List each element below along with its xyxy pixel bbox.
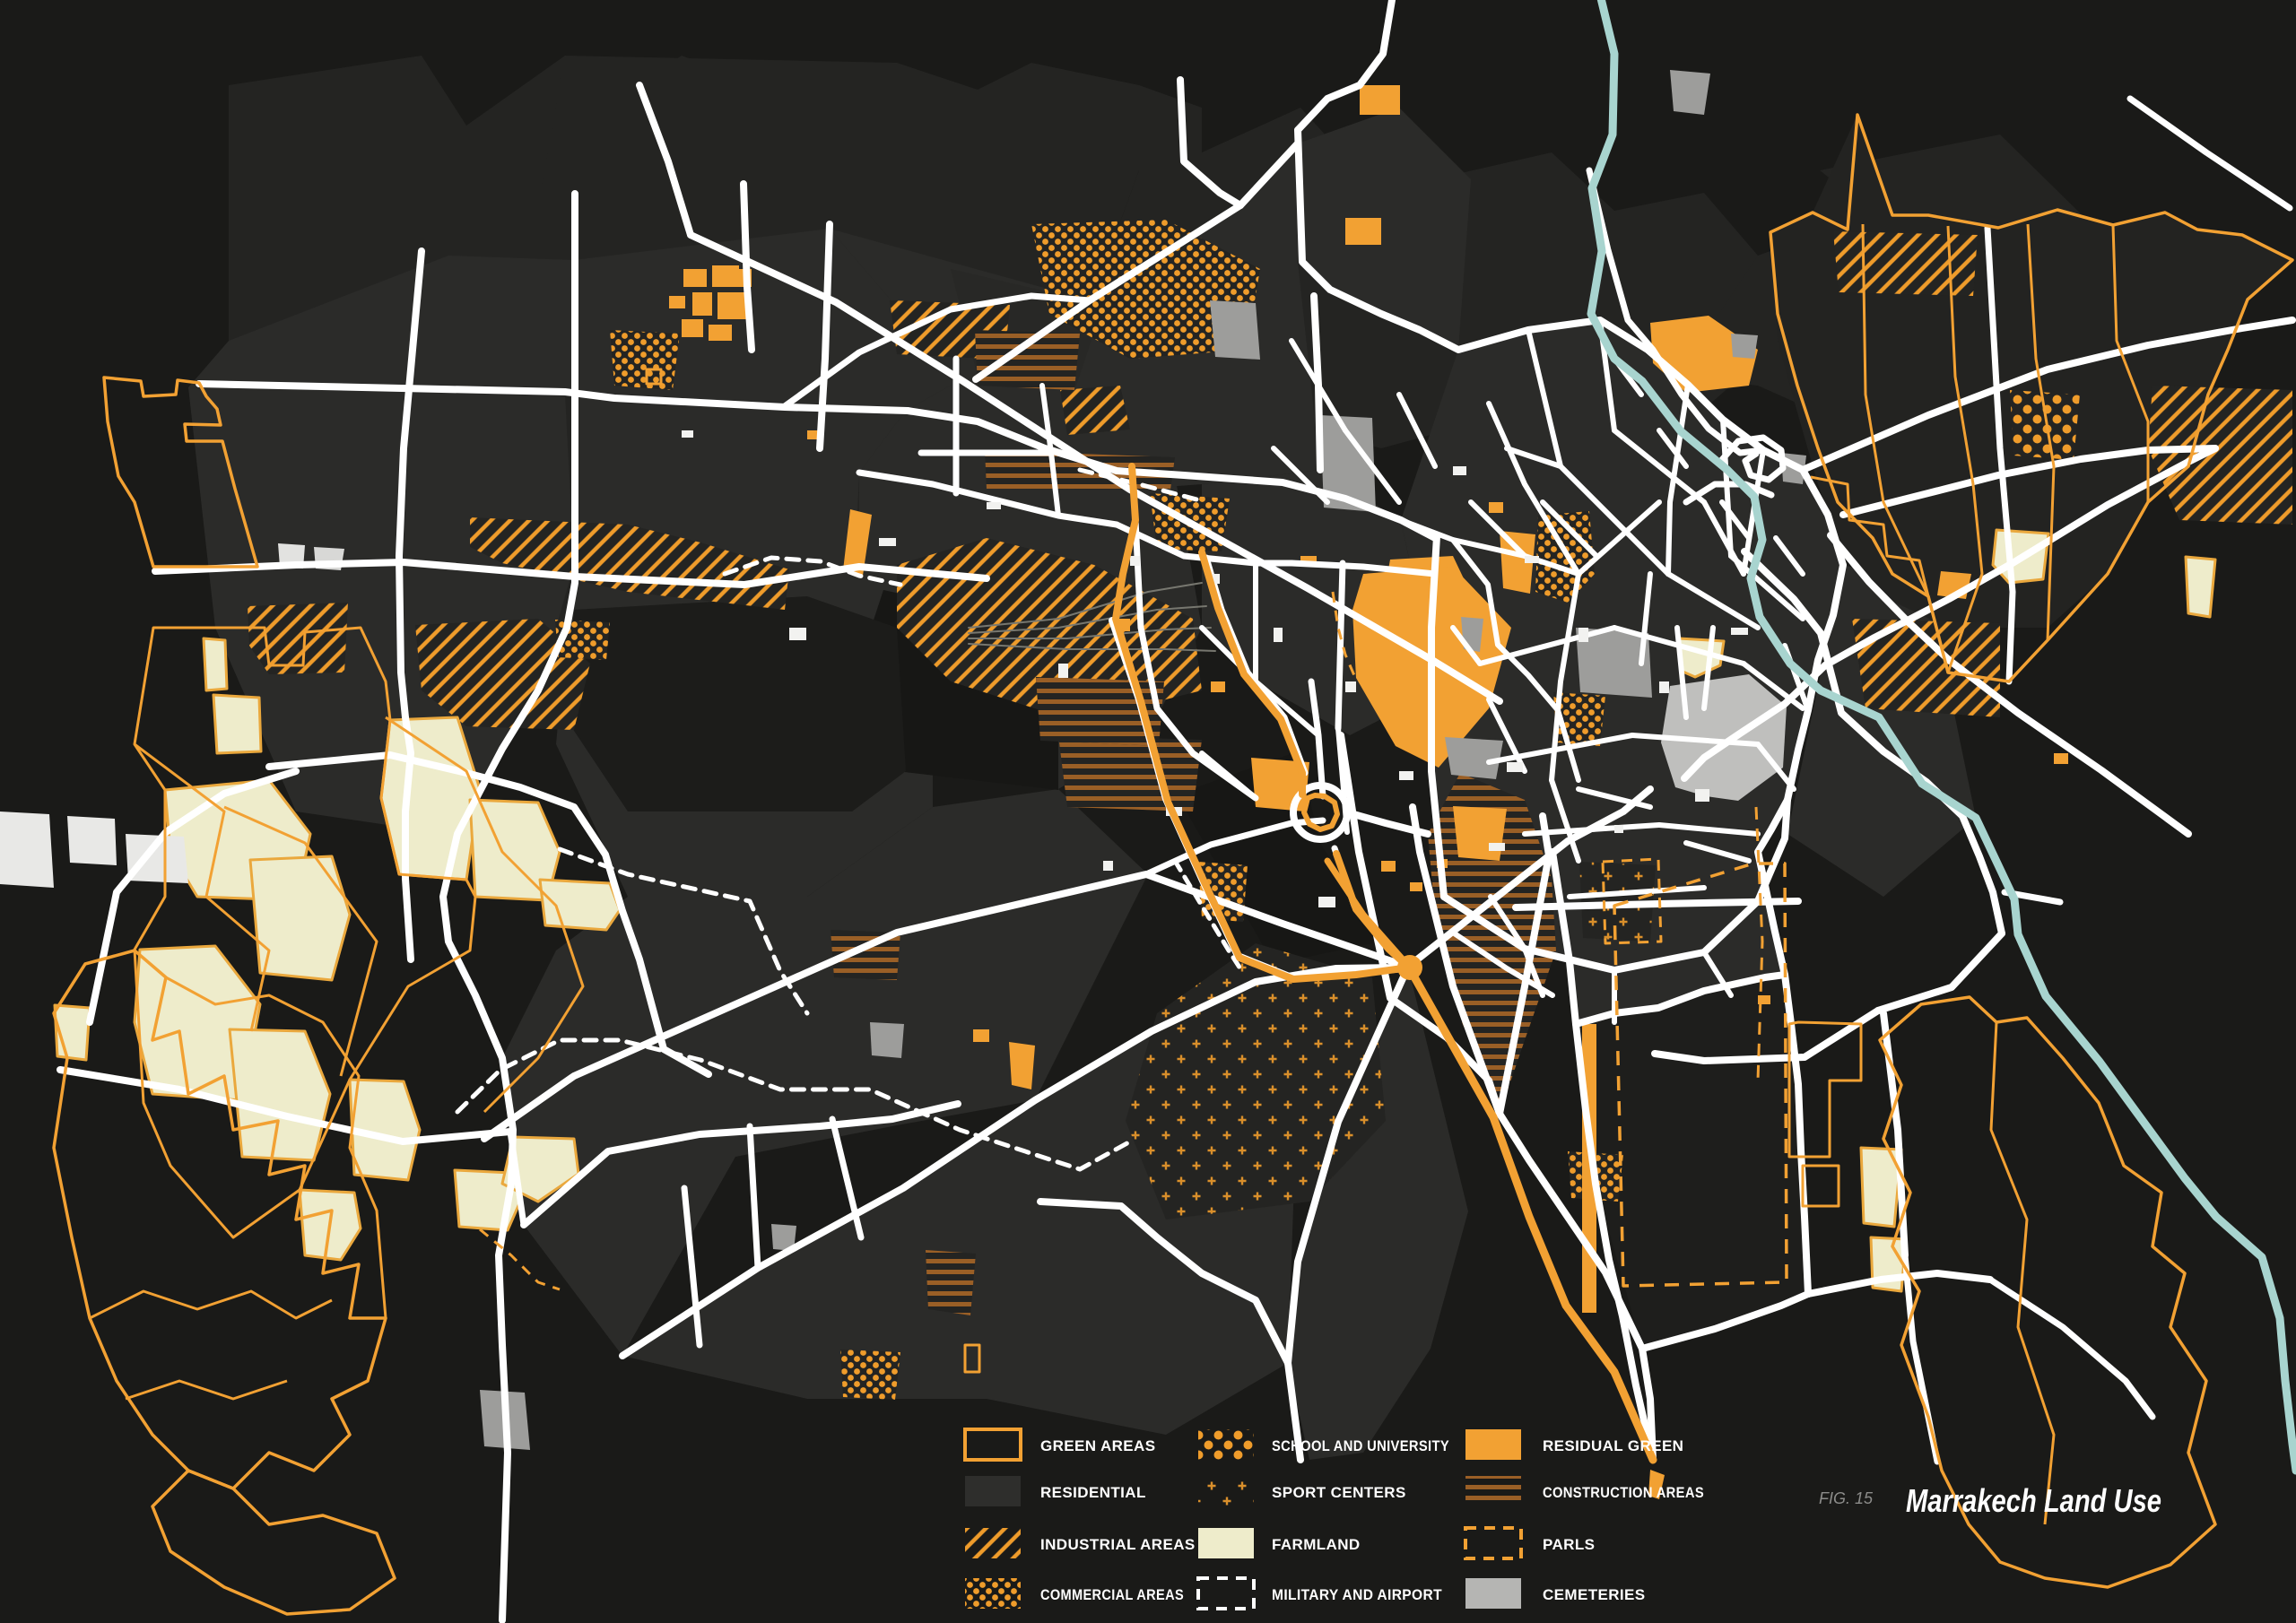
svg-text:SPORT CENTERS: SPORT CENTERS [1272,1484,1406,1501]
svg-text:CONSTRUCTION AREAS: CONSTRUCTION AREAS [1543,1484,1704,1501]
svg-text:COMMERCIAL AREAS: COMMERCIAL AREAS [1040,1586,1184,1603]
svg-text:CEMETERIES: CEMETERIES [1543,1586,1646,1603]
svg-text:RESIDENTIAL: RESIDENTIAL [1040,1484,1146,1501]
svg-text:GREEN AREAS: GREEN AREAS [1040,1437,1155,1454]
svg-text:FIG. 15: FIG. 15 [1819,1489,1874,1507]
svg-text:Marrakech Land Use: Marrakech Land Use [1906,1482,2161,1519]
svg-text:MILITARY AND AIRPORT: MILITARY AND AIRPORT [1272,1586,1442,1603]
svg-text:INDUSTRIAL AREAS: INDUSTRIAL AREAS [1040,1536,1196,1553]
svg-text:FARMLAND: FARMLAND [1272,1536,1361,1553]
svg-text:SCHOOL AND UNIVERSITY: SCHOOL AND UNIVERSITY [1272,1437,1449,1454]
svg-text:RESIDUAL GREEN: RESIDUAL GREEN [1543,1437,1683,1454]
svg-text:PARLS: PARLS [1543,1536,1595,1553]
